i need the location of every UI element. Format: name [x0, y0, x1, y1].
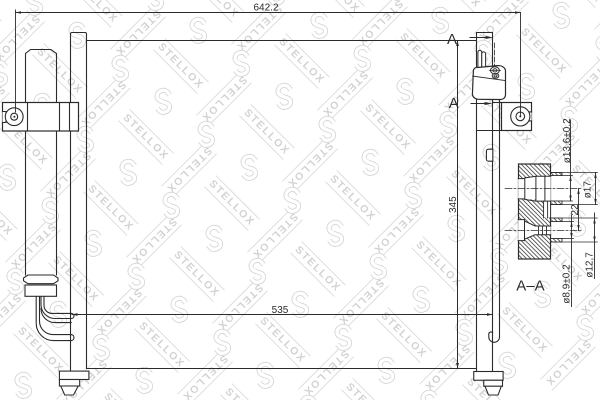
svg-text:535: 535	[272, 305, 289, 316]
svg-text:ø13,6±0.2: ø13,6±0.2	[562, 118, 573, 163]
svg-text:642.2: 642.2	[253, 3, 278, 14]
svg-text:A: A	[447, 31, 457, 48]
svg-text:A–A: A–A	[516, 278, 544, 295]
svg-text:ø8,9±0.2: ø8,9±0.2	[562, 264, 573, 304]
svg-text:22: 22	[570, 204, 581, 216]
svg-text:ø17: ø17	[582, 181, 593, 199]
svg-text:345: 345	[448, 196, 459, 213]
svg-text:ø12,7: ø12,7	[584, 252, 595, 278]
svg-text:A: A	[449, 95, 459, 112]
